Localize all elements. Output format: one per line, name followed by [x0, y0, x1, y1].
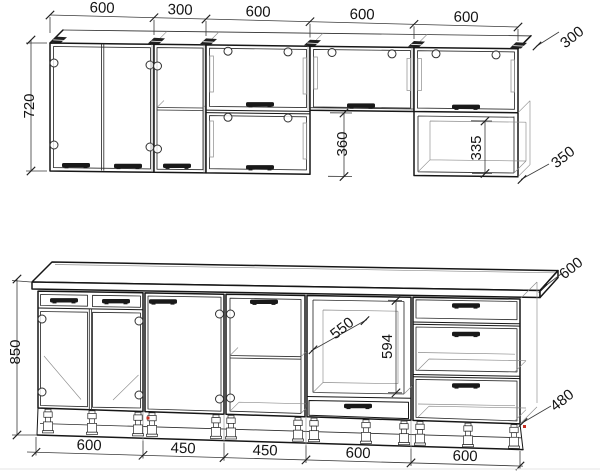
dim-label-lower-width-3: 450: [252, 442, 277, 460]
blueprint-svg: 600 300 600 600 600 720 360 335: [0, 0, 600, 475]
adjustable-leg-icon: [146, 413, 157, 437]
shelf-inner-height-dimension: 335: [468, 117, 492, 178]
hinge-icon: [135, 391, 143, 399]
hinge-icon: [216, 395, 224, 403]
dim-label-upper-height: 720: [21, 93, 38, 118]
carcass-depth-dimension: 480: [519, 386, 578, 427]
upper-depth-dimension: 300: [533, 23, 588, 52]
dim-label-upper-width-4: 600: [349, 6, 374, 24]
wall-hanger-bracket-icon: [408, 41, 425, 47]
wall-hanger-bracket-icon: [510, 42, 527, 48]
base-cabinet-door: [145, 293, 224, 414]
dim-label-lower-height: 850: [7, 339, 24, 364]
lower-cabinets: 594 550: [7, 254, 586, 470]
upper-cabinet-single-door: [152, 44, 210, 173]
hinge-icon: [135, 317, 143, 325]
hinge-icon: [50, 141, 58, 149]
dim-tick: [533, 42, 541, 50]
hinge-icon: [492, 51, 500, 59]
base-cabinet-oven-housing: 594 550: [307, 296, 414, 421]
adjustable-leg-icon: [360, 420, 371, 444]
adjustable-leg-icon: [132, 412, 143, 436]
hinge-icon: [50, 59, 58, 67]
hinge-icon: [224, 47, 232, 55]
hinge-icon: [154, 145, 162, 153]
wall-hanger-bracket-icon: [304, 40, 321, 46]
dim-label-upper-width-2: 300: [167, 1, 192, 19]
dim-label-shelf-depth: 350: [548, 143, 578, 172]
cabinet-blueprint: 600 300 600 600 600 720 360 335: [0, 0, 600, 475]
adjustable-leg-icon: [508, 425, 519, 449]
dim-label-lower-width-4: 600: [345, 444, 370, 462]
hinge-icon: [224, 113, 232, 121]
dim-tick: [518, 175, 526, 183]
hinge-icon: [432, 50, 440, 58]
adjustable-leg-icon: [462, 423, 473, 447]
hinge-icon: [227, 394, 235, 402]
wall-hanger-bracket-icon: [200, 38, 217, 44]
hinge-icon: [38, 315, 46, 323]
dim-label-countertop-depth: 600: [556, 254, 586, 283]
adjustable-leg-icon: [398, 421, 409, 445]
upper-cabinets: 600 300 600 600 600 720 360 335: [21, 0, 587, 184]
shelf-depth-dimension: 350: [518, 143, 579, 184]
upper-height-dimension: 720: [21, 36, 47, 175]
dim-label-upper-width-3: 600: [245, 3, 270, 21]
hinge-icon: [328, 49, 336, 57]
hinge-icon: [146, 61, 154, 69]
hinge-icon: [216, 310, 224, 318]
adjustable-leg-icon: [42, 409, 53, 433]
dim-label-upper-width-5: 600: [453, 8, 478, 26]
adjustable-leg-icon: [225, 415, 236, 439]
adjustable-leg-icon: [210, 415, 221, 439]
adjustable-leg-icon: [86, 411, 97, 435]
hinge-icon: [38, 388, 46, 396]
base-cabinet-open-shelf: [226, 294, 310, 417]
hinge-icon: [284, 114, 292, 122]
dim-label-shelf-inner-height: 335: [468, 135, 485, 160]
red-snap-marker: [147, 417, 150, 420]
adjustable-leg-icon: [308, 418, 319, 442]
hinge-icon: [154, 62, 162, 70]
wall-hanger-bracket-icon: [148, 38, 165, 44]
upper-cabinet-flip-door: [308, 46, 426, 111]
upper-cabinet-double-door: [50, 43, 154, 172]
hinge-icon: [388, 50, 396, 58]
lower-width-dimension: 600 450 450 600 600: [27, 437, 524, 471]
dim-label-lower-width-5: 600: [452, 447, 477, 465]
hinge-icon: [227, 310, 235, 318]
dim-label-lower-width-2: 450: [170, 440, 195, 458]
dim-label-carcass-depth: 480: [547, 386, 577, 415]
adjustable-leg-icon: [414, 422, 425, 446]
base-cabinet-double-door: [38, 291, 143, 411]
dim-label-oven-niche-height: 594: [379, 334, 396, 359]
flip-door-height-dimension: 360: [328, 109, 352, 181]
hinge-icon: [146, 143, 154, 151]
dim-label-flip-door-height: 360: [334, 131, 351, 156]
base-cabinet-drawers: [413, 282, 537, 424]
dim-label-upper-depth: 300: [557, 23, 587, 52]
dim-label-lower-width-1: 600: [76, 437, 101, 455]
red-snap-marker: [523, 425, 526, 428]
hinge-icon: [284, 48, 292, 56]
dim-label-upper-width-1: 600: [89, 0, 114, 17]
lower-height-dimension: 850: [7, 275, 36, 439]
adjustable-leg-icon: [292, 418, 303, 442]
upper-cabinet-two-flip-doors: [204, 45, 310, 174]
